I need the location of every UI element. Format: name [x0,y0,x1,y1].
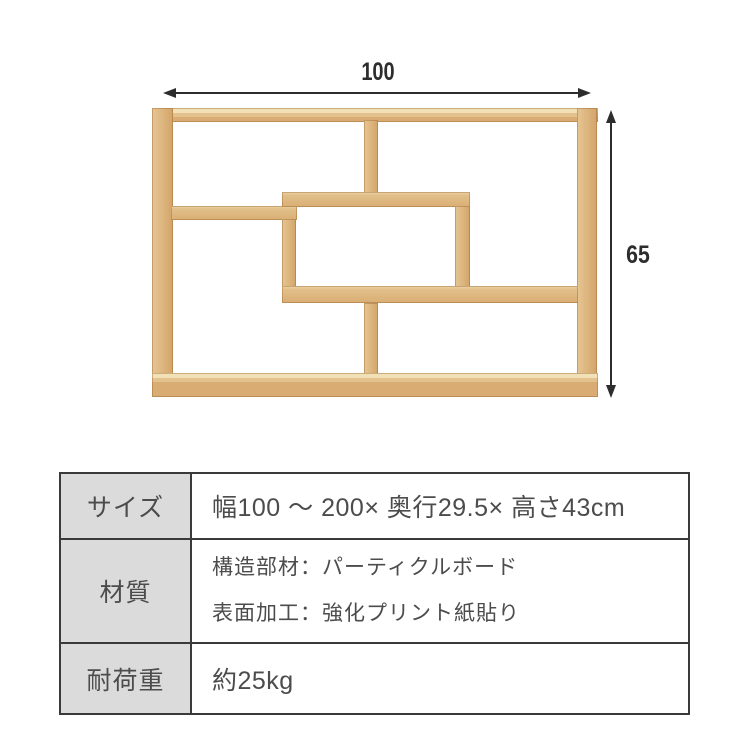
shelf-bottom-divider [364,303,378,374]
spec-row-material-header: 材質 [60,539,191,643]
spec-row-load-value: 約25kg [191,643,689,714]
shelf-upper-shelf-right [282,192,470,207]
shelf-illustration: 100 65 [0,0,750,470]
spec-material-surface-text: 表面加工：強化プリント紙貼り [212,591,687,637]
spec-row-load: 耐荷重 約25kg [60,643,689,714]
spec-row-size-value: 幅100 ～ 200× 奥行29.5× 高さ43cm [191,473,689,539]
shelf-right-connector [455,206,470,289]
shelf-lower-shelf [282,286,578,303]
height-dimension-arrow-icon [602,109,620,399]
spec-size-text: 幅100 ～ 200× 奥行29.5× 高さ43cm [212,494,625,522]
spec-row-size: サイズ 幅100 ～ 200× 奥行29.5× 高さ43cm [60,473,689,539]
spec-row-size-header: サイズ [60,473,191,539]
shelf-left-panel [152,108,173,397]
shelf-bottom-board [152,373,598,397]
spec-material-structure-text: 構造部材：パーティクルボード [212,545,687,591]
spec-load-text: 約25kg [212,667,294,695]
shelf-right-panel [577,108,597,397]
spec-row-material: 材質 構造部材：パーティクルボード 表面加工：強化プリント紙貼り [60,539,689,643]
spec-row-load-header: 耐荷重 [60,643,191,714]
height-dimension-label: 65 [623,241,654,270]
shelf-left-connector [282,219,296,288]
spec-table: サイズ 幅100 ～ 200× 奥行29.5× 高さ43cm 材質 構造部材：パ… [59,472,690,715]
spec-row-material-value: 構造部材：パーティクルボード 表面加工：強化プリント紙貼り [191,539,689,643]
shelf-top-divider [364,120,378,196]
shelf-upper-shelf-left [171,206,297,220]
width-dimension-label: 100 [356,58,401,87]
